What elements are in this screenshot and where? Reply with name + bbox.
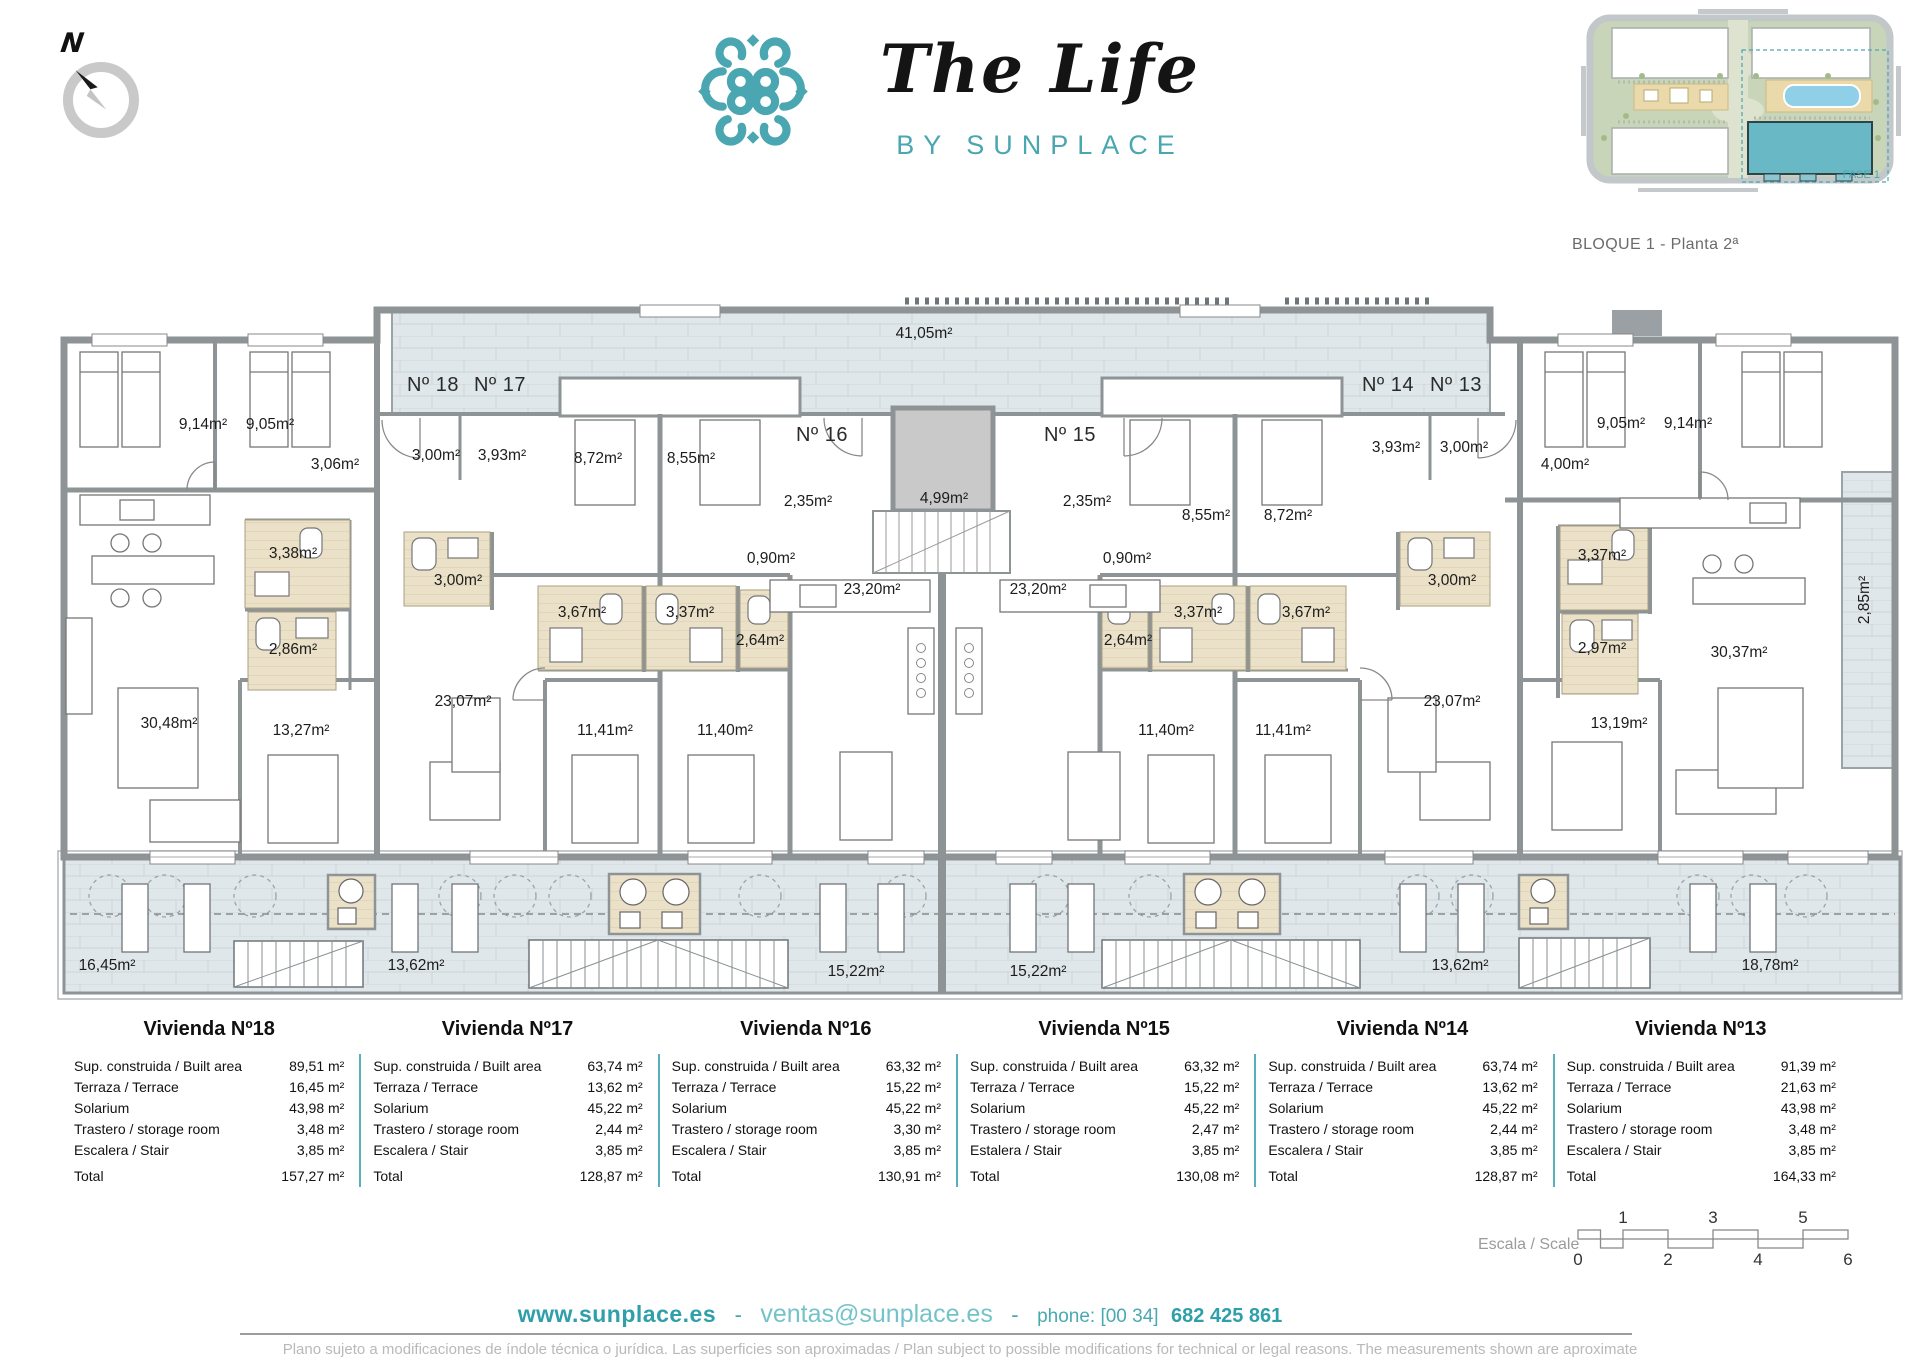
area-row-label: Solarium <box>373 1098 428 1119</box>
area-label: 8,55m² <box>667 450 715 467</box>
apartment-number-label: Nº 15 <box>1044 424 1096 446</box>
area-row: Solarium45,22 m² <box>970 1098 1239 1119</box>
area-label: 2,64m² <box>1104 632 1152 649</box>
area-label: 2,97m² <box>1578 640 1626 657</box>
area-row-value: 63,32 m² <box>1178 1056 1239 1077</box>
area-row-label: Sup. construida / Built area <box>970 1056 1138 1077</box>
area-row: Terraza / Terrace21,63 m² <box>1567 1077 1836 1098</box>
area-label: 23,07m² <box>435 693 492 710</box>
area-row-value: 2,44 m² <box>1484 1119 1537 1140</box>
separator: - <box>735 1302 742 1327</box>
area-row-label: Escalera / Stair <box>1567 1140 1662 1161</box>
scale-tick: 4 <box>1753 1250 1762 1269</box>
area-row-label: Terraza / Terrace <box>1567 1077 1672 1098</box>
area-row: Sup. construida / Built area91,39 m² <box>1567 1056 1836 1077</box>
area-row: Estalera / Stair3,85 m² <box>970 1140 1239 1161</box>
area-row: Solarium45,22 m² <box>672 1098 941 1119</box>
area-row-label: Estalera / Stair <box>970 1140 1062 1161</box>
area-row-value: 3,85 m² <box>1484 1140 1537 1161</box>
area-label: 4,00m² <box>1541 456 1589 473</box>
area-label: 9,14m² <box>179 416 227 433</box>
area-row: Sup. construida / Built area63,74 m² <box>1268 1056 1537 1077</box>
area-row-value: 43,98 m² <box>1775 1098 1836 1119</box>
vivienda-title: Vivienda Nº13 <box>1566 1018 1836 1041</box>
area-row-value: 91,39 m² <box>1775 1056 1836 1077</box>
area-row: Escalera / Stair3,85 m² <box>1268 1140 1537 1161</box>
area-label: 3,67m² <box>558 604 606 621</box>
area-row: Trastero / storage room2,44 m² <box>373 1119 642 1140</box>
vivienda-column: Vivienda Nº18Sup. construida / Built are… <box>60 1018 358 1187</box>
vivienda-title: Vivienda Nº15 <box>969 1018 1239 1041</box>
area-row: Trastero / storage room3,48 m² <box>74 1119 344 1140</box>
vivienda-area-table: Vivienda Nº18Sup. construida / Built are… <box>60 1018 1850 1187</box>
area-label: 18,78m² <box>1742 957 1799 974</box>
vivienda-column: Vivienda Nº14Sup. construida / Built are… <box>1253 1018 1551 1187</box>
area-row-value: 130,08 m² <box>1170 1166 1239 1187</box>
footer-contacts: www.sunplace.es - ventas@sunplace.es - p… <box>0 1300 1800 1329</box>
area-row-label: Total <box>970 1166 1000 1187</box>
area-row: Terraza / Terrace16,45 m² <box>74 1077 344 1098</box>
apartment-number-label: Nº 17 <box>474 374 526 396</box>
area-label: 0,90m² <box>747 550 795 567</box>
area-label: 3,37m² <box>1578 547 1626 564</box>
area-row-value: 63,32 m² <box>880 1056 941 1077</box>
area-row-value: 89,51 m² <box>283 1056 344 1077</box>
vivienda-title: Vivienda Nº17 <box>372 1018 642 1041</box>
phone-number[interactable]: 682 425 861 <box>1171 1305 1282 1327</box>
area-label: 23,20m² <box>844 581 901 598</box>
area-label: 4,99m² <box>920 490 968 507</box>
area-row-label: Sup. construida / Built area <box>672 1056 840 1077</box>
area-label: 8,72m² <box>574 450 622 467</box>
area-row: Total130,08 m² <box>970 1166 1239 1187</box>
separator: - <box>1011 1302 1018 1327</box>
area-label: 2,35m² <box>1063 493 1111 510</box>
area-row-value: 21,63 m² <box>1775 1077 1836 1098</box>
area-label: 15,22m² <box>828 963 885 980</box>
area-row: Terraza / Terrace15,22 m² <box>970 1077 1239 1098</box>
fase-label: FASE 1 <box>1843 169 1880 181</box>
area-label: 0,90m² <box>1103 550 1151 567</box>
area-row-label: Trastero / storage room <box>970 1119 1116 1140</box>
area-row-label: Solarium <box>74 1098 129 1119</box>
area-row: Total128,87 m² <box>1268 1166 1537 1187</box>
area-row-value: 128,87 m² <box>574 1166 643 1187</box>
area-row: Escalera / Stair3,85 m² <box>74 1140 344 1161</box>
area-row-label: Total <box>74 1166 104 1187</box>
area-row-label: Sup. construida / Built area <box>1268 1056 1436 1077</box>
area-label: 3,37m² <box>666 604 714 621</box>
area-row-value: 15,22 m² <box>880 1077 941 1098</box>
area-label: 30,48m² <box>141 715 198 732</box>
area-row: Terraza / Terrace15,22 m² <box>672 1077 941 1098</box>
area-label: 3,93m² <box>1372 439 1420 456</box>
brand-header: The Life BY SUNPLACE <box>690 22 1250 172</box>
vivienda-title: Vivienda Nº18 <box>74 1018 344 1041</box>
area-row-value: 16,45 m² <box>283 1077 344 1098</box>
area-row-value: 3,85 m² <box>1783 1140 1836 1161</box>
area-row-label: Sup. construida / Built area <box>373 1056 541 1077</box>
area-row-label: Sup. construida / Built area <box>1567 1056 1735 1077</box>
area-row: Terraza / Terrace13,62 m² <box>373 1077 642 1098</box>
area-label: 2,86m² <box>269 641 317 658</box>
area-row: Trastero / storage room2,44 m² <box>1268 1119 1537 1140</box>
project-title: The Life <box>830 30 1250 108</box>
area-label: 8,72m² <box>1264 507 1312 524</box>
area-row-value: 63,74 m² <box>1476 1056 1537 1077</box>
apartment-number-label: Nº 18 <box>407 374 459 396</box>
area-row: Solarium45,22 m² <box>1268 1098 1537 1119</box>
area-row: Solarium43,98 m² <box>1567 1098 1836 1119</box>
scale-tick: 1 <box>1618 1208 1627 1227</box>
area-row-label: Trastero / storage room <box>1567 1119 1713 1140</box>
area-row-value: 164,33 m² <box>1767 1166 1836 1187</box>
area-row: Total128,87 m² <box>373 1166 642 1187</box>
area-row: Solarium43,98 m² <box>74 1098 344 1119</box>
area-row-label: Terraza / Terrace <box>373 1077 478 1098</box>
vivienda-column: Vivienda Nº16Sup. construida / Built are… <box>657 1018 955 1187</box>
area-row-value: 2,47 m² <box>1186 1119 1239 1140</box>
email-link[interactable]: ventas@sunplace.es <box>760 1300 992 1328</box>
apartment-number-label: Nº 14 <box>1362 374 1414 396</box>
footer-divider <box>240 1333 1632 1335</box>
area-row: Total130,91 m² <box>672 1166 941 1187</box>
area-label: 3,00m² <box>1440 439 1488 456</box>
floor-plan: Nº 18Nº 17Nº 16Nº 15Nº 14Nº 1341,05m²9,1… <box>55 238 1905 1012</box>
area-label: 11,40m² <box>697 722 753 739</box>
area-label: 11,41m² <box>1255 722 1311 739</box>
area-row-value: 3,85 m² <box>1186 1140 1239 1161</box>
area-row: Terraza / Terrace13,62 m² <box>1268 1077 1537 1098</box>
scale-tick: 3 <box>1708 1208 1717 1227</box>
area-row-value: 3,85 m² <box>291 1140 344 1161</box>
area-label: 2,85m² <box>1856 576 1873 624</box>
website-link[interactable]: www.sunplace.es <box>518 1301 716 1327</box>
area-row-value: 3,85 m² <box>589 1140 642 1161</box>
sunplace-logo-icon <box>690 26 816 152</box>
area-row-label: Total <box>373 1166 403 1187</box>
area-row: Sup. construida / Built area63,74 m² <box>373 1056 642 1077</box>
area-row-label: Escalera / Stair <box>672 1140 767 1161</box>
area-row-label: Trastero / storage room <box>74 1119 220 1140</box>
area-label: 3,06m² <box>311 456 359 473</box>
area-row-label: Total <box>1567 1166 1597 1187</box>
area-row: Escalera / Stair3,85 m² <box>373 1140 642 1161</box>
area-row: Sup. construida / Built area63,32 m² <box>970 1056 1239 1077</box>
area-row-label: Terraza / Terrace <box>672 1077 777 1098</box>
area-row-label: Total <box>672 1166 702 1187</box>
area-label: 30,37m² <box>1711 644 1768 661</box>
area-row-label: Terraza / Terrace <box>74 1077 179 1098</box>
area-row-label: Terraza / Terrace <box>1268 1077 1373 1098</box>
area-label: 2,64m² <box>736 632 784 649</box>
vivienda-title: Vivienda Nº16 <box>671 1018 941 1041</box>
area-label: 9,05m² <box>1597 415 1645 432</box>
vivienda-column: Vivienda Nº17Sup. construida / Built are… <box>358 1018 656 1187</box>
area-row-value: 15,22 m² <box>1178 1077 1239 1098</box>
scale-bar: 1350246 <box>1570 1206 1870 1270</box>
area-row-label: Terraza / Terrace <box>970 1077 1075 1098</box>
phone-label: phone: [00 34] <box>1037 1306 1159 1327</box>
area-row-value: 3,85 m² <box>888 1140 941 1161</box>
area-label: 23,07m² <box>1424 693 1481 710</box>
area-label: 3,00m² <box>1428 572 1476 589</box>
area-row-label: Escalera / Stair <box>74 1140 169 1161</box>
apartment-number-label: Nº 13 <box>1430 374 1482 396</box>
area-row-label: Trastero / storage room <box>1268 1119 1414 1140</box>
area-label: 16,45m² <box>79 957 136 974</box>
area-row-value: 63,74 m² <box>581 1056 642 1077</box>
area-row-value: 45,22 m² <box>1476 1098 1537 1119</box>
area-row-label: Escalera / Stair <box>373 1140 468 1161</box>
area-row-value: 13,62 m² <box>1476 1077 1537 1098</box>
area-label: 2,35m² <box>784 493 832 510</box>
area-row-value: 2,44 m² <box>589 1119 642 1140</box>
area-row: Trastero / storage room2,47 m² <box>970 1119 1239 1140</box>
area-label: 9,14m² <box>1664 415 1712 432</box>
area-row: Total164,33 m² <box>1567 1166 1836 1187</box>
compass: N <box>55 28 165 158</box>
area-label: 3,38m² <box>269 545 317 562</box>
legal-disclaimer: Plano sujeto a modificaciones de índole … <box>0 1341 1920 1358</box>
area-label: 13,19m² <box>1591 715 1648 732</box>
area-row-label: Solarium <box>970 1098 1025 1119</box>
area-label: 3,93m² <box>478 447 526 464</box>
area-row: Solarium45,22 m² <box>373 1098 642 1119</box>
project-subtitle: BY SUNPLACE <box>840 130 1240 161</box>
area-row-label: Trastero / storage room <box>672 1119 818 1140</box>
vivienda-column: Vivienda Nº15Sup. construida / Built are… <box>955 1018 1253 1187</box>
area-row: Trastero / storage room3,48 m² <box>1567 1119 1836 1140</box>
area-row-label: Sup. construida / Built area <box>74 1056 242 1077</box>
area-row-label: Solarium <box>1268 1098 1323 1119</box>
area-row-value: 45,22 m² <box>1178 1098 1239 1119</box>
area-label: 3,00m² <box>412 447 460 464</box>
scale-tick: 2 <box>1663 1250 1672 1269</box>
area-row-value: 3,48 m² <box>1783 1119 1836 1140</box>
area-row: Sup. construida / Built area63,32 m² <box>672 1056 941 1077</box>
scale-tick: 5 <box>1798 1208 1807 1227</box>
area-row-label: Total <box>1268 1166 1298 1187</box>
area-row-value: 43,98 m² <box>283 1098 344 1119</box>
area-row-value: 157,27 m² <box>275 1166 344 1187</box>
area-label: 9,05m² <box>246 416 294 433</box>
area-label: 8,55m² <box>1182 507 1230 524</box>
area-row-value: 128,87 m² <box>1469 1166 1538 1187</box>
scale-tick: 6 <box>1843 1250 1852 1269</box>
area-row-label: Solarium <box>672 1098 727 1119</box>
scale-label: Escala / Scale <box>1478 1236 1579 1254</box>
area-row-label: Solarium <box>1567 1098 1622 1119</box>
area-label: 23,20m² <box>1010 581 1067 598</box>
area-row-value: 45,22 m² <box>880 1098 941 1119</box>
area-label: 11,40m² <box>1138 722 1194 739</box>
area-row-label: Escalera / Stair <box>1268 1140 1363 1161</box>
area-row-value: 45,22 m² <box>581 1098 642 1119</box>
area-row-value: 3,30 m² <box>888 1119 941 1140</box>
area-label: 13,62m² <box>1432 957 1489 974</box>
compass-needle-icon <box>63 62 119 118</box>
area-label: 3,00m² <box>434 572 482 589</box>
area-row: Escalera / Stair3,85 m² <box>1567 1140 1836 1161</box>
apartment-number-label: Nº 16 <box>796 424 848 446</box>
area-label: 41,05m² <box>896 325 953 342</box>
area-label: 11,41m² <box>577 722 633 739</box>
area-label: 15,22m² <box>1010 963 1067 980</box>
area-row-label: Trastero / storage room <box>373 1119 519 1140</box>
vivienda-column: Vivienda Nº13Sup. construida / Built are… <box>1552 1018 1850 1187</box>
area-label: 13,62m² <box>388 957 445 974</box>
compass-north-label: N <box>59 28 86 59</box>
vivienda-title: Vivienda Nº14 <box>1267 1018 1537 1041</box>
area-row-value: 3,48 m² <box>291 1119 344 1140</box>
scale-tick: 0 <box>1573 1250 1582 1269</box>
area-row: Trastero / storage room3,30 m² <box>672 1119 941 1140</box>
area-label: 13,27m² <box>273 722 330 739</box>
area-row: Escalera / Stair3,85 m² <box>672 1140 941 1161</box>
area-label: 3,37m² <box>1174 604 1222 621</box>
area-row: Total157,27 m² <box>74 1166 344 1187</box>
area-label: 3,67m² <box>1282 604 1330 621</box>
area-row-value: 13,62 m² <box>581 1077 642 1098</box>
area-row: Sup. construida / Built area89,51 m² <box>74 1056 344 1077</box>
area-row-value: 130,91 m² <box>872 1166 941 1187</box>
site-plan-inset: FASE 1 <box>1578 6 1904 196</box>
